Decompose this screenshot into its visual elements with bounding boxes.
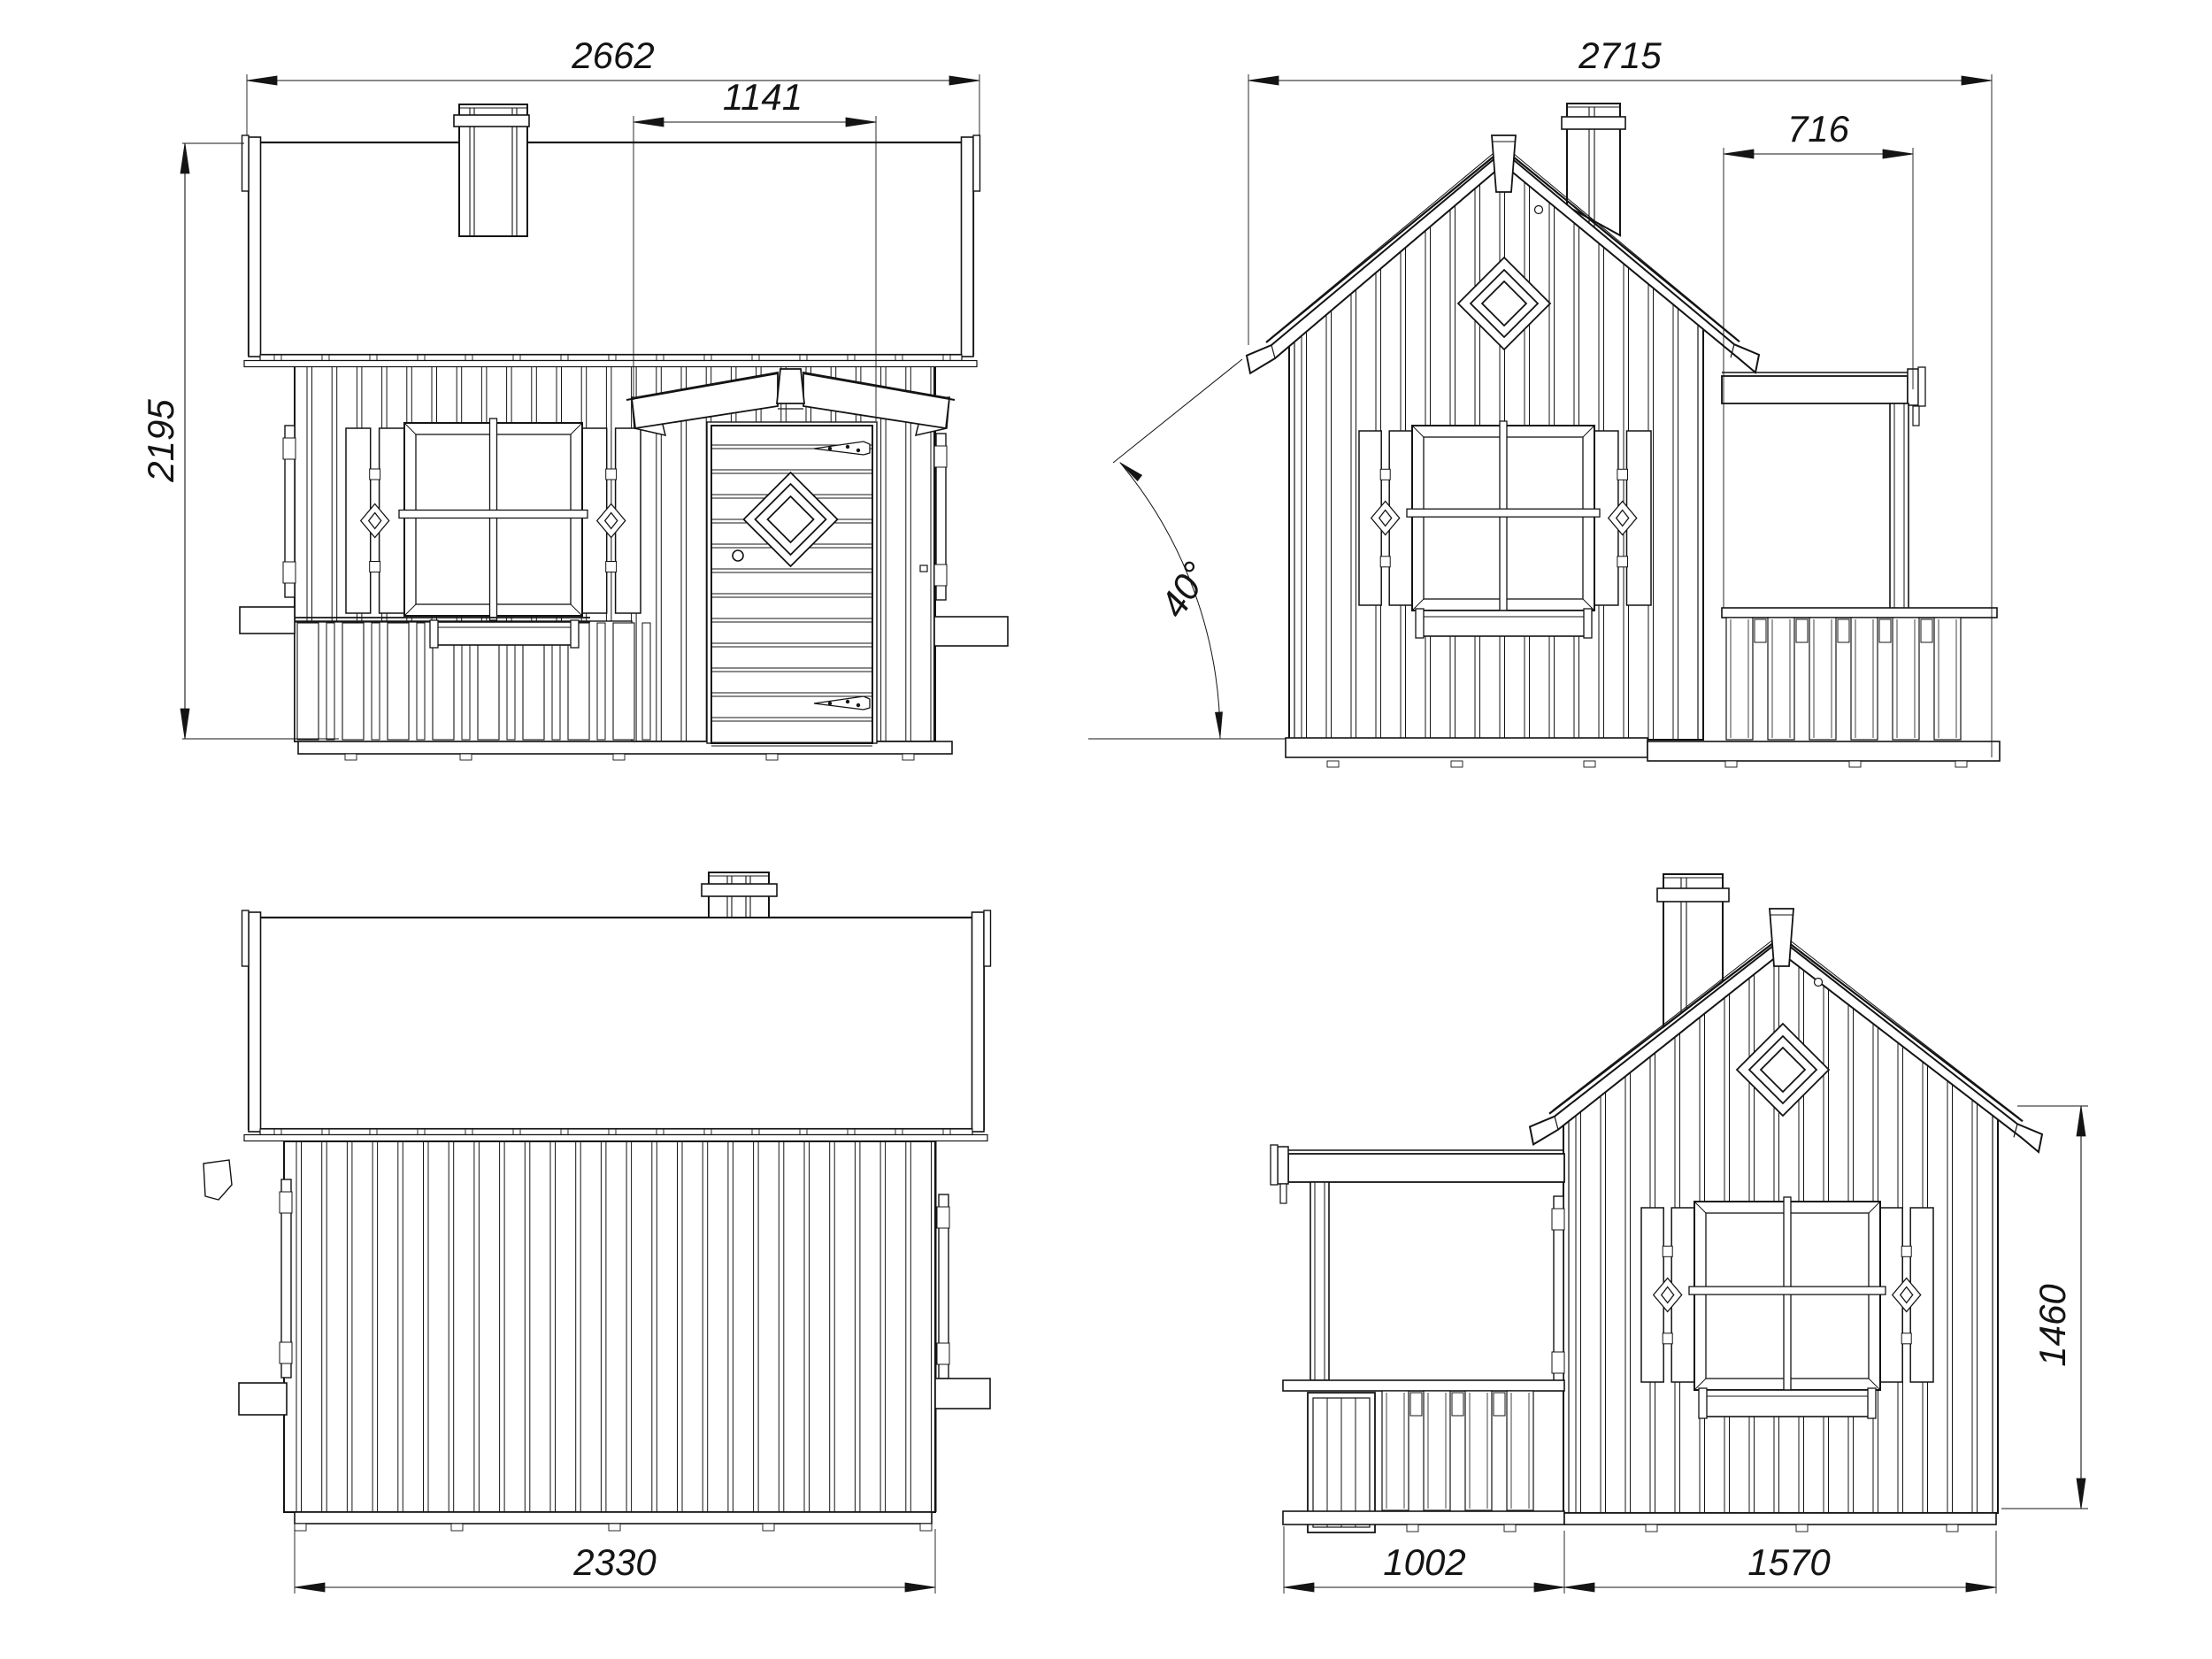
- svg-text:1460: 1460: [2032, 1284, 2073, 1367]
- svg-text:2195: 2195: [140, 399, 181, 483]
- svg-text:2715: 2715: [1578, 35, 1662, 76]
- svg-text:1002: 1002: [1383, 1541, 1465, 1583]
- svg-text:2662: 2662: [571, 35, 654, 76]
- svg-text:1570: 1570: [1747, 1541, 1831, 1583]
- svg-text:716: 716: [1787, 108, 1850, 150]
- svg-text:1141: 1141: [723, 76, 803, 118]
- svg-text:2330: 2330: [572, 1541, 657, 1583]
